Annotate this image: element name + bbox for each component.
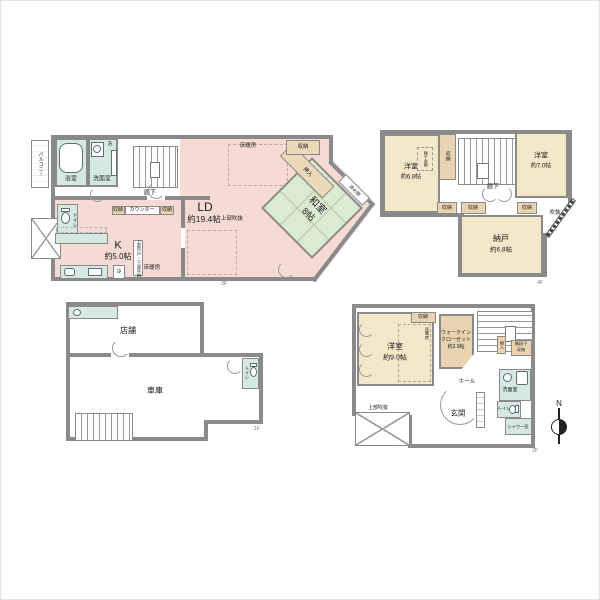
wall [568,130,572,205]
washer-label: 洗 [108,141,113,146]
bedroom-90-label: 洋室 [387,342,403,351]
closet-label: 収納 [418,314,428,320]
washing-machine [516,371,528,385]
floor-heating-label: 床暖房 [144,265,161,271]
toilet-label: トイレ [71,213,77,228]
floor-heating-label: 床暖房 [424,327,429,340]
window-arc [359,342,374,357]
fridge-label: 冷 [117,269,122,275]
storeroom-label: 納戸 [493,234,509,243]
door-arc [227,358,243,374]
upper-cabinet-dashed [56,227,107,233]
cupboard-label: 上部吊戸・下部収納 [136,239,141,277]
door-arc [496,186,512,202]
floor-plan-1f: 店舗 車庫 トイレ 1F [55,295,270,447]
storeroom-size-label: 約6.8帖 [490,246,512,253]
bathtub [59,143,83,173]
wic-label-1: ウォークイン [441,330,471,336]
oshiire-label: 押入 [301,166,313,178]
under-stairs-label-1: 階段下 [515,342,528,347]
closet-label: 収納 [442,205,452,211]
void-above-label: 上部吹抜 [368,405,388,411]
kitchen-label: K [114,240,121,253]
door-opening [181,228,185,248]
bedroom-68-label: 洋室 [404,163,418,171]
window-arc [359,362,374,377]
bathroom-label: 浴室 [65,176,77,183]
wall [543,233,547,277]
stove [88,268,102,276]
floor-heating-label: 床暖房 [240,143,257,149]
ld-size-label: 約19.4帖 [187,215,221,225]
toilet-bowl [61,212,70,224]
ld-label: LD [197,201,212,215]
wall [53,196,210,200]
kitchen-sink [64,268,75,276]
toilet-label: トイレ [243,366,248,380]
closet-label: 収納 [113,207,123,213]
wall [200,353,263,357]
void-hatched-wall [545,198,576,238]
closet-label: 収納 [162,207,172,213]
counter-label: カウンター [130,207,155,213]
bedroom-70-label: 洋室 [534,152,548,160]
bedroom-68-size-label: 約6.8帖 [401,174,421,181]
wall [200,302,204,357]
floor-label-4f: 4F [537,280,543,286]
toilet-bowl [509,405,516,414]
floor-plan-3f: バルコニー 浴室 洗 洗面室 廊下 トイレ 収納 カウンター 収納 [30,130,378,290]
floor-heating-zone [187,230,237,275]
closet-label: 収納 [298,144,309,150]
door-arc [148,182,165,199]
door-arc [90,187,105,202]
storeroom [460,215,543,275]
closet-label: 収納 [444,151,450,161]
kitchen-size-label: 約5.0帖 [104,252,131,261]
door-arc [112,339,130,357]
wall [259,353,263,424]
wall [66,302,70,441]
garage-label: 車庫 [147,386,163,395]
small-storage-label: 物入 [499,341,504,349]
floor-label-3f: 3F [221,281,227,287]
floor-plan-4f: 洋室 約6.8帖 物干金物 収納 洋室 約7.0帖 廊下 収納 収納 収納 納戸… [378,126,578,288]
door-arc [278,261,295,278]
floor-label-1f: 1F [254,426,260,432]
void-label: 吹抜 [550,210,561,216]
compass-icon [551,419,567,435]
under-stairs-label-2: 収納 [517,348,525,353]
laundry-fitting-label: 物干金物 [423,151,428,167]
floor-heating-zone [228,144,288,186]
wall [204,420,263,424]
staircase [75,413,133,441]
wic-label-2: クローゼット [441,337,471,343]
stair-core [150,162,160,178]
wall [352,304,356,416]
shoe-cabinet [476,392,485,428]
floor-label-2f: 2F [532,448,538,454]
exterior-staircase [355,412,410,446]
washer-drum [93,145,101,153]
wall [352,304,535,308]
wall [329,135,333,163]
window-arc [359,322,374,337]
shop-label: 店舗 [120,326,136,335]
wall [408,444,535,448]
washbasin [503,373,512,382]
closet-label: 収納 [468,205,478,211]
washroom-label: 洗面室 [93,176,111,183]
void-above-label: 上部吹抜 [221,216,243,222]
balcony-label: バルコニー [37,152,43,177]
closet-label: 収納 [522,205,532,211]
wic-size-label: 約2.9帖 [448,344,465,350]
bedroom-70-size-label: 約7.0帖 [531,163,551,170]
shower-label: シャワー室 [508,425,529,430]
wall [66,353,204,357]
vanity [111,150,117,176]
floorplan-canvas: バルコニー 浴室 洗 洗面室 廊下 トイレ 収納 カウンター 収納 [0,0,600,600]
toilet-bowl [250,367,257,377]
bedroom-90-size-label: 約9.0帖 [383,354,407,362]
stair-core [477,163,489,179]
washroom-label: 洗面室 [503,387,518,393]
kitchen-cabinet [55,233,108,244]
entrance-door-arc [440,385,480,425]
shop-sink [73,309,81,316]
floor-plan-2f: 洋室 約9.0帖 収納 床暖房 ウォークイン クローゼット 約2.9帖 物入 階… [345,300,577,455]
